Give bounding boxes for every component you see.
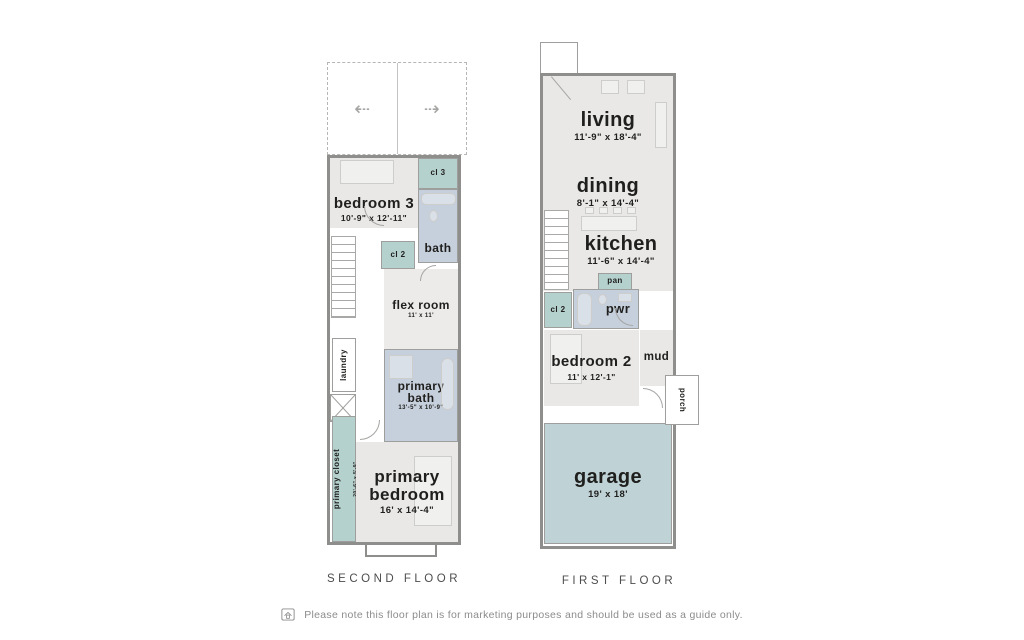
closet2-first-label: cl 2: [551, 306, 566, 314]
primary-closet-name: primary closet: [332, 449, 341, 509]
dining-room: dining 8'-1" x 14'-4": [543, 176, 673, 209]
second-floor-label: SECOND FLOOR: [318, 573, 470, 585]
roof-outline: ⇠ ⇢: [327, 62, 467, 155]
bay-window: [365, 545, 437, 557]
mud-label: mud: [644, 352, 669, 364]
sink-outline: [618, 293, 632, 302]
kitchen-name: kitchen: [569, 234, 673, 254]
roof-right-half: ⇢: [398, 63, 467, 154]
kitchen-room: kitchen 11'-6" x 14'-4": [569, 234, 673, 267]
bath-room: bath: [418, 189, 458, 263]
door-arc: [420, 265, 436, 281]
bed-outline: [340, 160, 394, 184]
garage-name: garage: [574, 467, 642, 487]
bedroom2-dims: 11' x 12'-1": [567, 372, 615, 382]
first-floor-body: living 11'-9" x 18'-4" dining 8'-1" x 14…: [540, 73, 676, 549]
closet2-second-label: cl 2: [391, 251, 406, 259]
closet2-second-room: cl 2: [381, 241, 415, 269]
living-dims: 11'-9" x 18'-4": [543, 132, 673, 143]
kitchen-dims: 11'-6" x 14'-4": [569, 256, 673, 267]
pantry-label: pan: [607, 277, 622, 285]
door-arc: [360, 420, 380, 440]
primary-closet-room: primary closet 20'-6" x 5'-9": [332, 416, 356, 542]
toilet-outline: [429, 210, 438, 222]
slope-arrow-left-icon: ⇠: [354, 98, 370, 120]
primary-bedroom-dims: 16' x 14'-4": [380, 505, 434, 516]
porch-label: porch: [678, 388, 686, 412]
chair-outline: [627, 80, 645, 94]
primary-bath-room: primary bath 13'-5" x 10'-9": [384, 349, 458, 442]
disclaimer-text: Please note this floor plan is for marke…: [304, 609, 743, 621]
primary-bath-dims: 13'-5" x 10'-9": [398, 405, 443, 411]
pantry-room: pan: [598, 273, 632, 290]
chair-outline: [601, 80, 619, 94]
laundry-room: laundry: [332, 338, 356, 392]
bath-label: bath: [425, 242, 452, 254]
primary-bedroom-room: primary bedroom 16' x 14'-4": [356, 442, 458, 542]
second-floor-plan: ⇠ ⇢ bedroom 3 10'-9" x 12'-11" cl 3 bath…: [318, 55, 470, 600]
dining-name: dining: [543, 176, 673, 196]
freestanding-tub-outline: [441, 358, 454, 410]
flex-room-dims: 11' x 11': [408, 313, 434, 319]
dining-dims: 8'-1" x 14'-4": [543, 198, 673, 209]
second-floor-body: bedroom 3 10'-9" x 12'-11" cl 3 bath cl …: [327, 155, 461, 545]
dining-table-outline: [581, 216, 637, 231]
slope-arrow-right-icon: ⇢: [424, 98, 440, 120]
flex-room-name: flex room: [392, 299, 450, 311]
door-arc: [643, 388, 663, 408]
tub-outline: [421, 193, 456, 205]
first-floor-plan: living 11'-9" x 18'-4" dining 8'-1" x 14…: [538, 38, 700, 600]
laundry-label: laundry: [340, 349, 348, 381]
footer-disclaimer: Please note this floor plan is for marke…: [0, 608, 1024, 621]
porch: porch: [665, 375, 699, 425]
closet2-first-room: cl 2: [544, 292, 572, 328]
stoop: [540, 42, 578, 74]
garage-room: garage 19' x 18': [544, 423, 672, 544]
garage-dims: 19' x 18': [588, 489, 628, 500]
flex-room: flex room 11' x 11': [384, 269, 458, 349]
closet3-label: cl 3: [431, 169, 446, 177]
living-room: living 11'-9" x 18'-4": [543, 110, 673, 143]
bedroom2-room: bedroom 2 11' x 12'-1": [544, 330, 639, 406]
stairs-second-floor: [331, 236, 356, 318]
toilet-outline: [598, 294, 607, 305]
living-name: living: [543, 110, 673, 130]
shower-outline: [389, 355, 413, 379]
house-icon: [281, 608, 295, 621]
closet3-room: cl 3: [418, 158, 458, 189]
stairs-first-floor: [544, 210, 569, 290]
first-floor-label: FIRST FLOOR: [538, 575, 700, 587]
tub-outline: [577, 293, 592, 326]
roof-left-half: ⇠: [328, 63, 397, 154]
primary-bedroom-name: primary bedroom: [364, 468, 450, 503]
primary-bath-name: primary bath: [395, 380, 447, 404]
bedroom2-name: bedroom 2: [551, 354, 631, 369]
